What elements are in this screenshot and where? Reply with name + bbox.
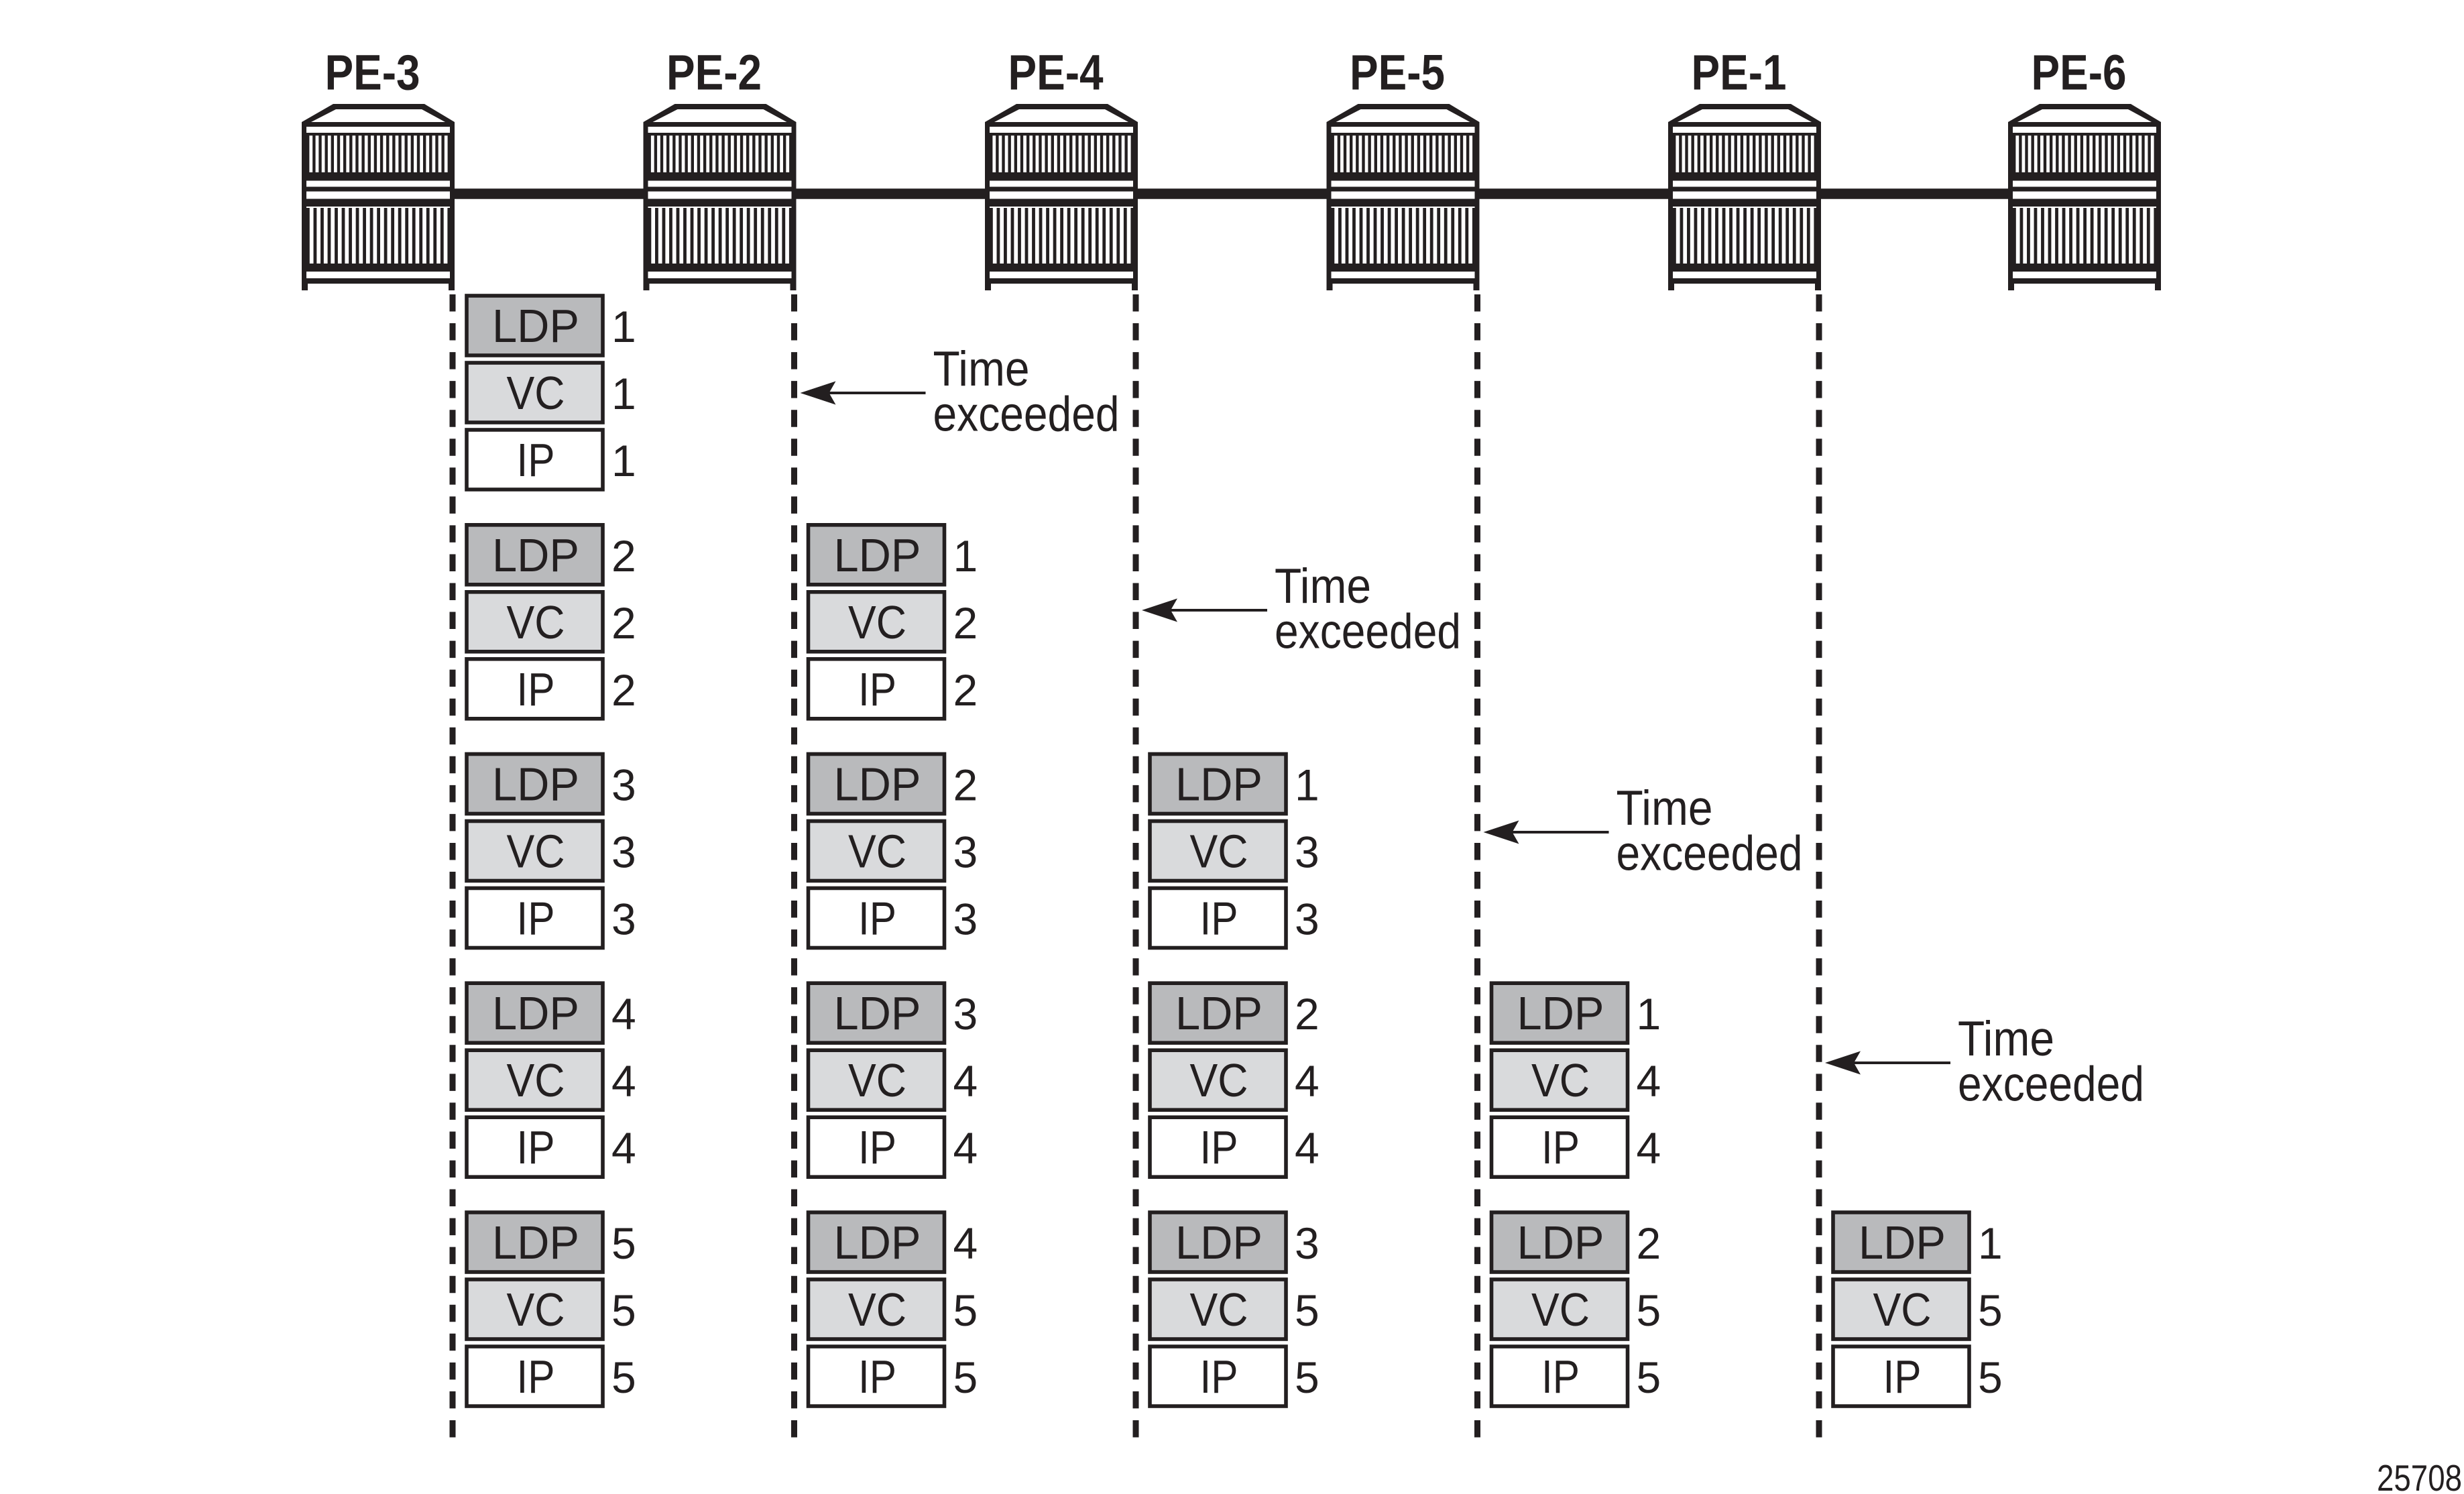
svg-text:5: 5 [611,1285,636,1335]
svg-text:PE-1: PE-1 [1692,45,1787,101]
svg-text:2: 2 [953,665,978,715]
svg-text:4: 4 [611,1056,636,1106]
svg-text:1: 1 [1295,760,1319,810]
svg-text:LDP: LDP [1517,987,1604,1039]
svg-text:LDP: LDP [492,758,579,811]
svg-text:PE-4: PE-4 [1008,45,1104,101]
svg-text:exceeded: exceeded [1958,1057,2144,1112]
svg-text:4: 4 [953,1123,978,1173]
svg-text:VC: VC [1190,825,1248,878]
svg-text:2: 2 [611,665,636,715]
svg-text:4: 4 [1295,1056,1319,1106]
svg-text:1: 1 [953,531,978,581]
svg-text:5: 5 [953,1285,978,1335]
svg-text:4: 4 [611,1123,636,1173]
svg-text:VC: VC [507,367,565,419]
svg-text:1: 1 [1637,989,1661,1039]
svg-text:IP: IP [1200,1121,1238,1173]
svg-text:LDP: LDP [492,987,579,1039]
svg-text:3: 3 [1295,827,1319,877]
svg-text:VC: VC [1190,1283,1248,1336]
svg-text:IP: IP [1541,1351,1580,1403]
svg-text:VC: VC [507,825,565,878]
svg-text:PE-6: PE-6 [2032,45,2127,101]
svg-text:3: 3 [1295,895,1319,944]
svg-text:IP: IP [1200,893,1238,945]
svg-text:PE-5: PE-5 [1350,45,1445,101]
svg-text:VC: VC [848,825,906,878]
svg-text:1: 1 [1978,1218,2003,1268]
svg-text:IP: IP [517,893,555,945]
svg-text:LDP: LDP [492,300,579,352]
svg-text:IP: IP [1541,1121,1580,1173]
svg-text:2: 2 [953,760,978,810]
svg-text:1: 1 [611,436,636,485]
svg-text:IP: IP [858,893,896,945]
svg-text:LDP: LDP [834,1216,921,1269]
svg-text:IP: IP [858,663,896,715]
svg-text:LDP: LDP [1175,987,1263,1039]
svg-text:LDP: LDP [492,1216,579,1269]
svg-text:4: 4 [1295,1123,1319,1173]
svg-text:4: 4 [953,1218,978,1268]
svg-text:VC: VC [507,596,565,648]
svg-text:5: 5 [1978,1285,2003,1335]
svg-text:LDP: LDP [834,758,921,811]
svg-text:5: 5 [953,1353,978,1402]
svg-text:VC: VC [1873,1283,1932,1336]
svg-text:3: 3 [611,895,636,944]
svg-text:LDP: LDP [492,529,579,581]
svg-text:IP: IP [517,663,555,715]
svg-text:3: 3 [953,895,978,944]
svg-text:1: 1 [611,302,636,351]
svg-text:IP: IP [1883,1351,1922,1403]
svg-text:2: 2 [1637,1218,1661,1268]
svg-text:5: 5 [1637,1285,1661,1335]
svg-text:3: 3 [1295,1218,1319,1268]
svg-text:IP: IP [1200,1351,1238,1403]
svg-text:1: 1 [611,369,636,418]
svg-text:3: 3 [611,827,636,877]
svg-text:PE-2: PE-2 [666,45,762,101]
svg-text:5: 5 [611,1353,636,1402]
svg-text:4: 4 [1637,1056,1661,1106]
svg-text:VC: VC [507,1054,565,1106]
svg-text:LDP: LDP [834,987,921,1039]
svg-text:exceeded: exceeded [1617,827,1803,881]
svg-text:2: 2 [611,531,636,581]
svg-text:VC: VC [848,1283,906,1336]
svg-text:3: 3 [953,827,978,877]
svg-text:4: 4 [611,989,636,1039]
svg-text:VC: VC [1531,1283,1590,1336]
svg-text:LDP: LDP [1859,1216,1946,1269]
svg-text:5: 5 [1978,1353,2003,1402]
svg-text:5: 5 [611,1218,636,1268]
svg-text:IP: IP [517,1121,555,1173]
svg-text:VC: VC [848,1054,906,1106]
svg-text:5: 5 [1637,1353,1661,1402]
svg-text:LDP: LDP [1175,758,1263,811]
svg-text:LDP: LDP [1517,1216,1604,1269]
svg-text:exceeded: exceeded [1275,605,1461,659]
svg-text:LDP: LDP [834,529,921,581]
svg-text:4: 4 [953,1056,978,1106]
svg-text:VC: VC [507,1283,565,1336]
svg-text:VC: VC [848,596,906,648]
svg-text:exceeded: exceeded [933,388,1120,442]
svg-text:2: 2 [953,598,978,648]
svg-text:4: 4 [1637,1123,1661,1173]
svg-text:25708: 25708 [2377,1457,2462,1494]
svg-text:2: 2 [1295,989,1319,1039]
svg-text:3: 3 [611,760,636,810]
svg-text:VC: VC [1531,1054,1590,1106]
svg-text:5: 5 [1295,1285,1319,1335]
svg-text:2: 2 [611,598,636,648]
svg-text:IP: IP [517,434,555,486]
svg-text:VC: VC [1190,1054,1248,1106]
svg-text:3: 3 [953,989,978,1039]
svg-text:IP: IP [517,1351,555,1403]
svg-text:5: 5 [1295,1353,1319,1402]
svg-text:PE-3: PE-3 [325,45,420,101]
svg-text:IP: IP [858,1351,896,1403]
svg-text:LDP: LDP [1175,1216,1263,1269]
svg-text:IP: IP [858,1121,896,1173]
